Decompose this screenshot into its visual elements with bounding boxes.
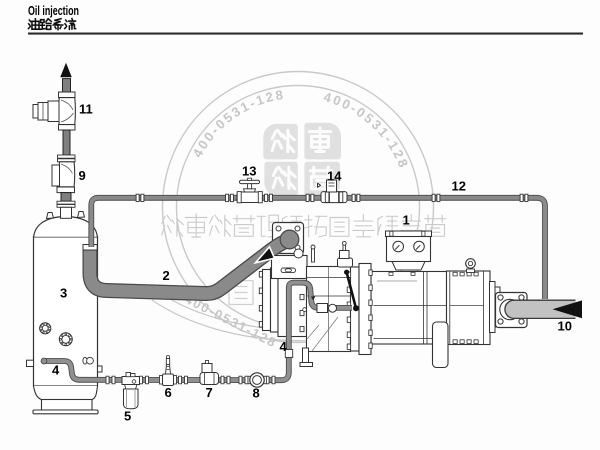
svg-text:8: 8 [253,386,260,401]
svg-text:7: 7 [206,385,213,400]
svg-text:4: 4 [52,363,60,378]
svg-text:9: 9 [79,168,86,183]
svg-text:5: 5 [124,409,131,424]
svg-text:4: 4 [280,339,288,354]
svg-text:6: 6 [165,385,172,400]
svg-text:12: 12 [452,179,466,194]
svg-text:10: 10 [558,319,572,334]
svg-text:2: 2 [163,268,170,283]
svg-text:11: 11 [79,102,93,117]
svg-text:Oil injection: Oil injection [28,3,79,18]
svg-text:14: 14 [327,169,342,184]
svg-text:1: 1 [403,213,410,228]
svg-text:13: 13 [242,164,256,179]
svg-text:3: 3 [60,286,67,301]
